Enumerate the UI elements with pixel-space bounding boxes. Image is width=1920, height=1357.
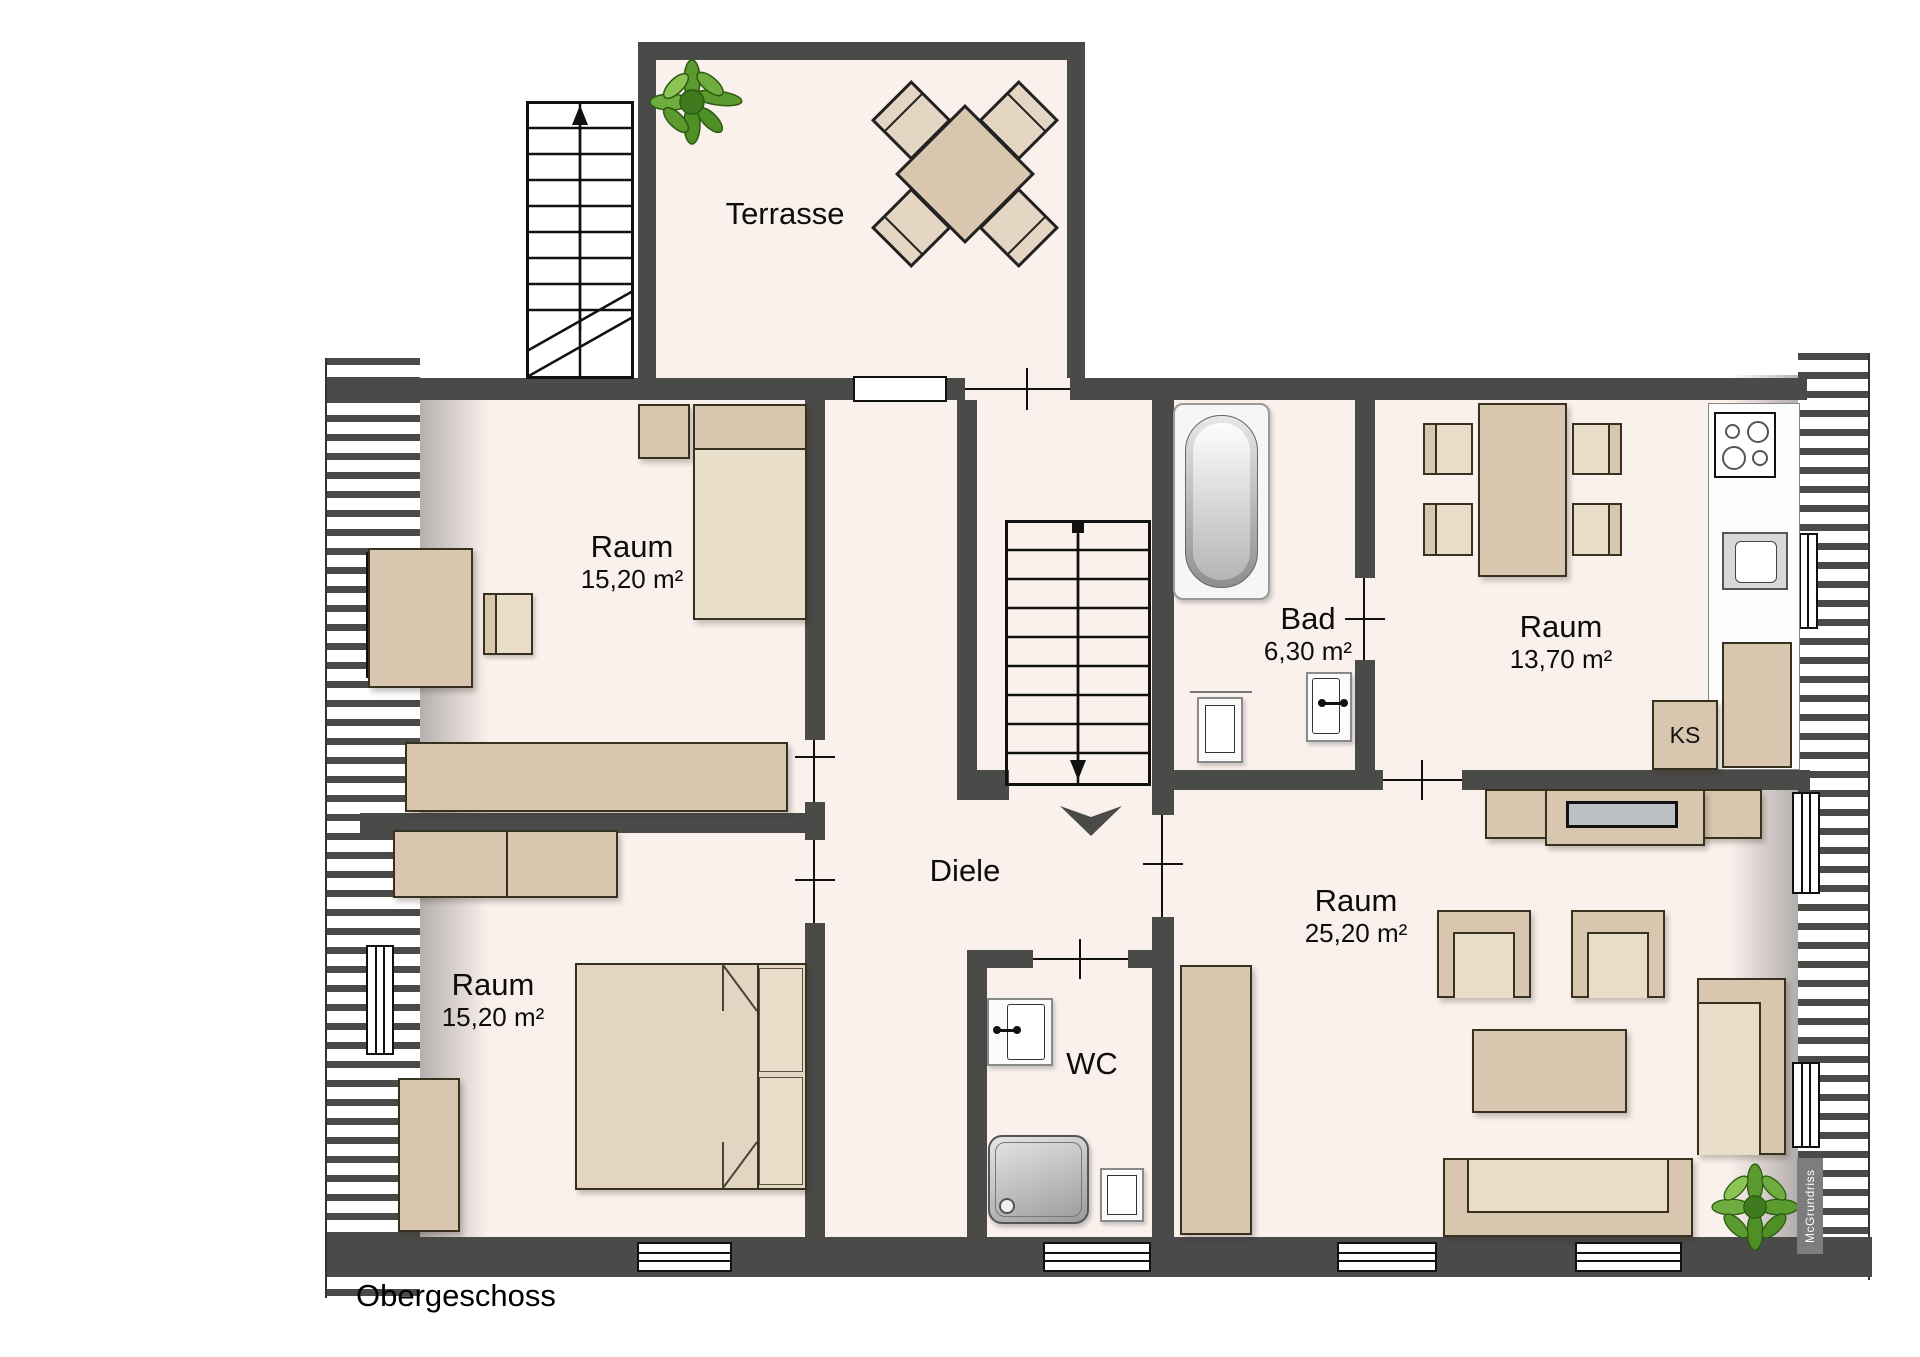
wall-diele-left-lower [805,923,825,1237]
door-wc-tick [1079,939,1081,979]
bad-counter-line [1190,691,1252,693]
sink-bad [1197,697,1243,763]
window-bottom-living-left [1337,1242,1437,1272]
dining-chair-top-right [1572,423,1622,475]
wall-diele-left-upper [805,400,825,740]
window-bottom-bed [637,1242,732,1272]
wall-bad-bottom [1152,770,1383,790]
armchair-right [1571,910,1665,998]
door-dining-tick [1421,760,1423,800]
door-raum-tl-line [813,740,815,802]
door-raum-tl-tick [795,756,835,758]
plant-terrace [652,62,752,162]
label-raum-top-right: Raum13,70 m² [1510,610,1613,674]
kitchen-lower-counter [1722,642,1792,768]
wall-wc-left [967,950,987,1237]
window-right-living-upper [1792,792,1820,894]
label-bad: Bad6,30 m² [1264,602,1352,666]
toilet-bad [1306,672,1352,742]
external-stairs [526,101,634,379]
wall-dining-bottom [1462,770,1810,790]
toilet-wc [987,998,1053,1066]
sink-wc [1100,1168,1144,1222]
kitchen-sink [1722,532,1788,590]
terrace-door-line [965,388,1070,390]
door-raum-bl-line [813,840,815,923]
bed-double [575,963,807,1190]
terrace-window [853,376,947,402]
wall-stair-corridor-foot [957,770,1009,800]
tv-screen [1566,801,1678,828]
dining-chair-bottom-right [1572,503,1622,556]
desk-chair [483,593,533,655]
window-left-bottom [366,945,394,1055]
stove [1714,412,1776,478]
sofa-bottom [1443,1158,1693,1237]
sideboard-top-left-room [405,742,788,812]
watermark: McGrundriss [1797,1158,1823,1254]
dining-chair-bottom-left [1423,503,1473,556]
coffee-table [1472,1029,1627,1113]
label-raum-bottom-left: Raum15,20 m² [442,968,545,1032]
wall-stair-corridor [957,400,977,800]
wall-bad-right-upper [1355,400,1375,578]
window-bottom-wc [1043,1242,1151,1272]
wardrobe-living-room [1180,965,1252,1235]
door-raum-bl-tick [795,879,835,881]
dining-table [1478,403,1567,577]
window-bottom-living-right [1575,1242,1682,1272]
bed-single [693,404,807,620]
window-right-living-lower [1792,1062,1820,1148]
label-raum-top-left: Raum15,20 m² [581,530,684,594]
door-living-line [1161,815,1163,917]
refrigerator-label: KS [1670,722,1701,749]
floor-title: Obergeschoss [356,1278,556,1314]
armchair-left [1437,910,1531,998]
wall-living-left [1152,917,1174,1237]
sofa-right [1697,978,1786,1155]
roof-hatch-left-edge [325,358,327,1298]
stairs-direction-chevron [1060,804,1122,838]
label-diele: Diele [930,853,1001,889]
label-wc: WC [1066,1046,1118,1082]
desk [368,548,473,688]
dining-chair-top-left [1423,423,1473,475]
interior-stairs [1005,520,1151,786]
terrace-door-tick [1026,368,1028,410]
wardrobe-bottom-left-room [398,1078,460,1232]
shower [988,1135,1089,1224]
floor-plan: KS Terrasse Raum15,20 m² Raum15,20 m² [0,0,1920,1357]
door-living-tick [1143,863,1183,865]
label-terrasse: Terrasse [726,196,845,232]
dresser-bottom-left-room [393,830,618,898]
roof-hatch-right-edge [1868,353,1870,1280]
terrace-table-group [815,24,1115,324]
plant-living-room [1712,1164,1798,1250]
label-raum-bottom-right: Raum25,20 m² [1305,884,1408,948]
wall-bad-left [1152,400,1174,815]
wall-wc-top-right [1128,950,1154,968]
refrigerator: KS [1652,700,1718,770]
bathtub [1173,403,1270,600]
nightstand [638,404,690,459]
